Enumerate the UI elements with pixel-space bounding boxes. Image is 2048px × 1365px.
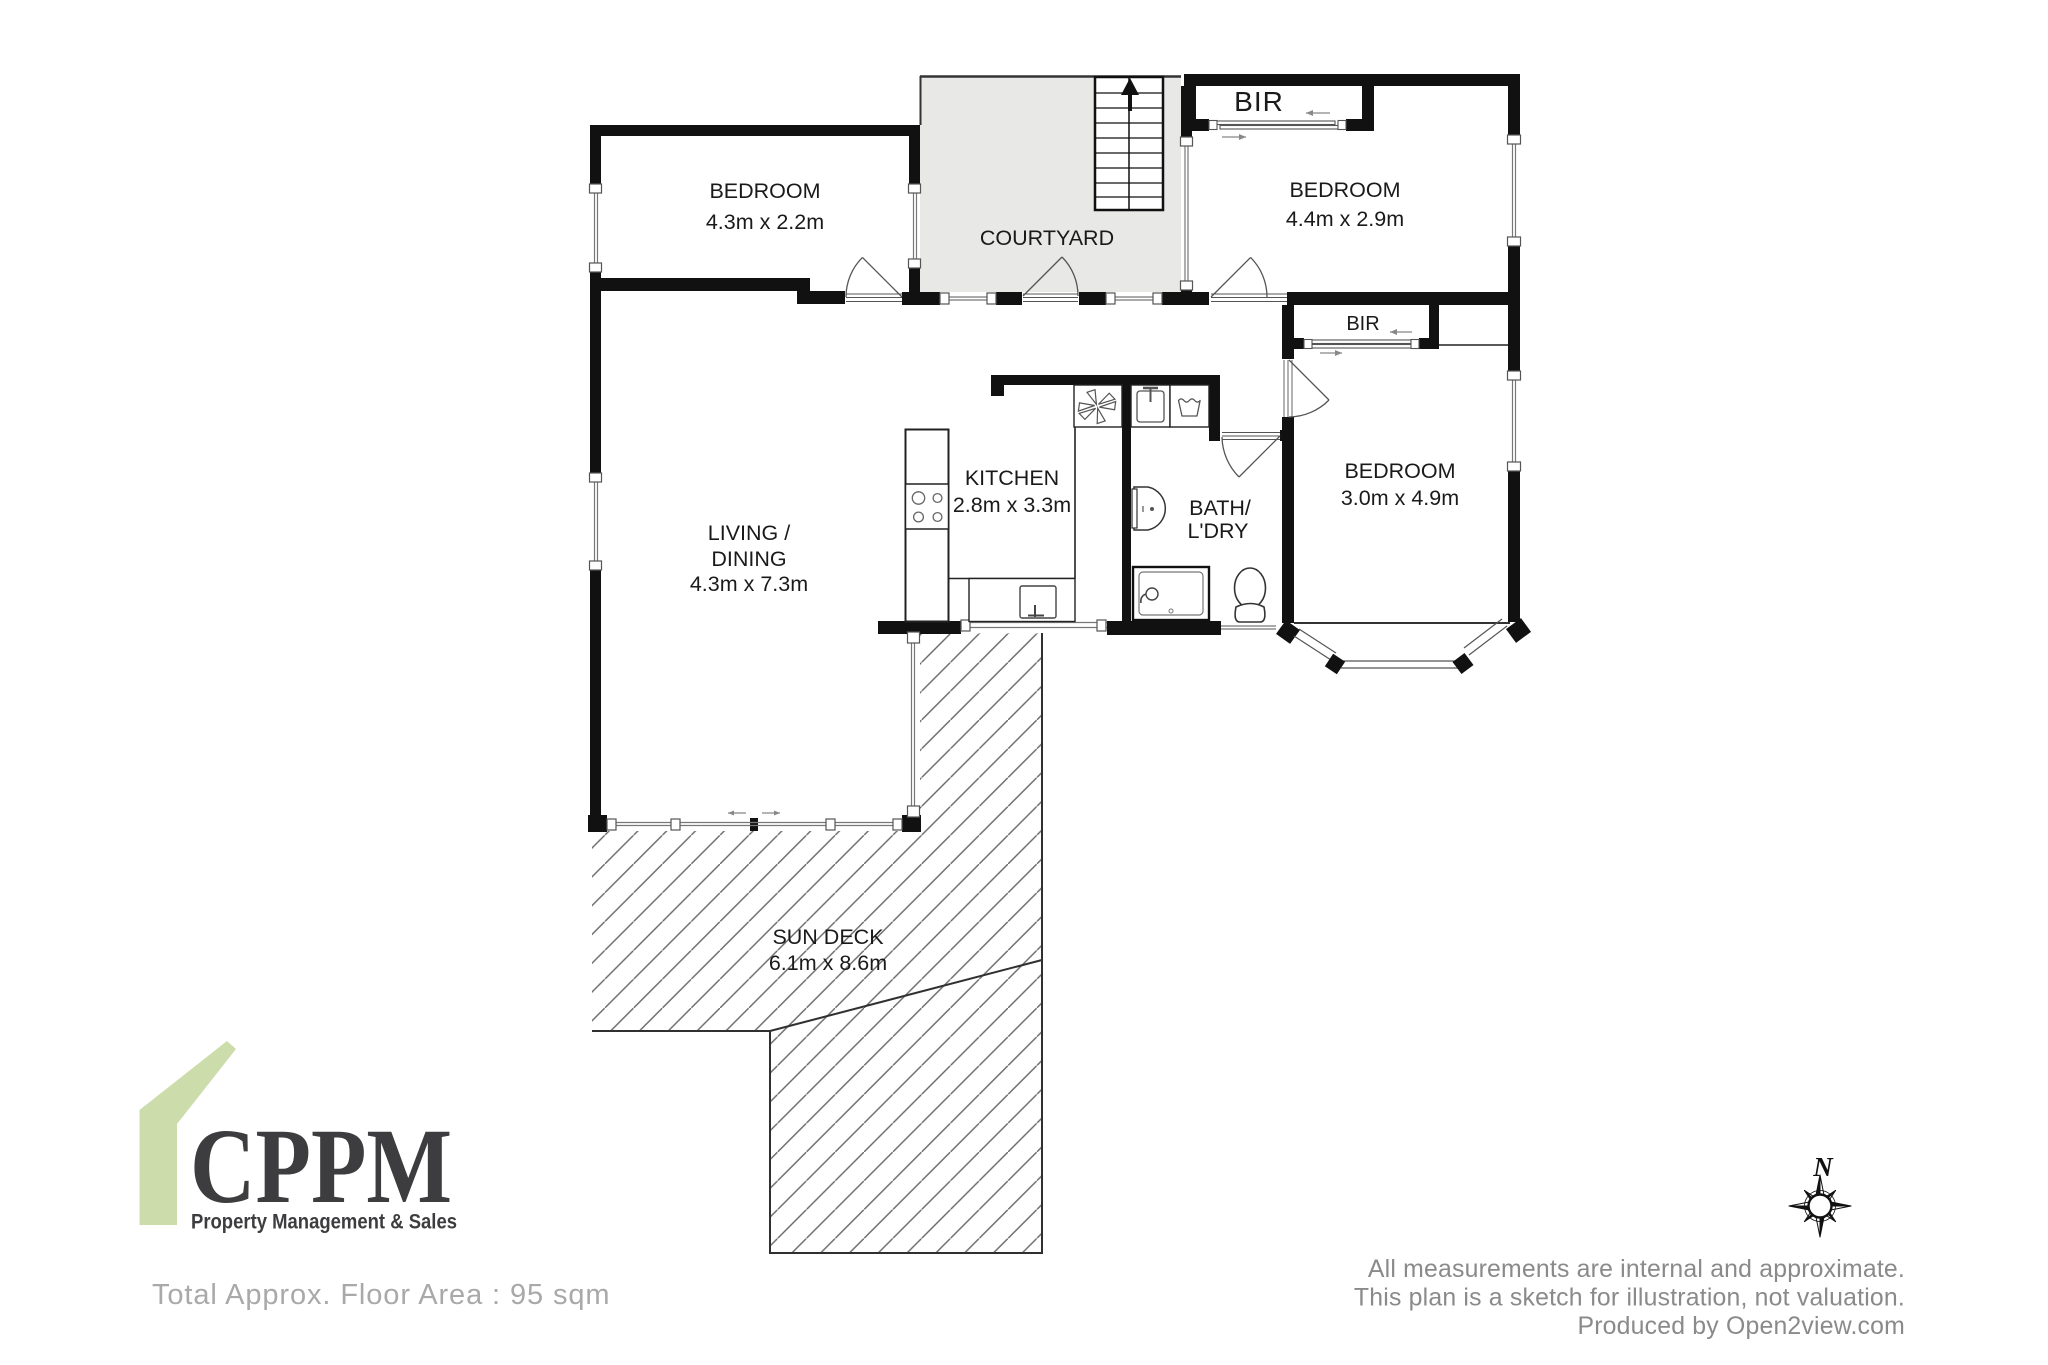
svg-text:6.1m x 8.6m: 6.1m x 8.6m (769, 951, 887, 975)
svg-text:L'DRY: L'DRY (1187, 519, 1248, 543)
svg-text:N: N (1812, 1152, 1834, 1182)
svg-text:Total Approx. Floor Area : 95: Total Approx. Floor Area : 95 sqm (152, 1279, 610, 1311)
svg-text:BIR: BIR (1346, 313, 1379, 335)
svg-text:4.3m x 2.2m: 4.3m x 2.2m (706, 210, 824, 234)
svg-text:BIR: BIR (1234, 86, 1284, 117)
svg-text:BEDROOM: BEDROOM (1344, 459, 1455, 483)
svg-text:4.3m x 7.3m: 4.3m x 7.3m (690, 572, 808, 596)
svg-text:3.0m x 4.9m: 3.0m x 4.9m (1341, 486, 1459, 510)
svg-text:BATH/: BATH/ (1189, 496, 1251, 520)
svg-text:2.8m x 3.3m: 2.8m x 3.3m (953, 493, 1071, 517)
svg-text:DINING: DINING (711, 547, 786, 571)
svg-text:LIVING /: LIVING / (708, 521, 790, 545)
svg-text:SUN DECK: SUN DECK (772, 925, 884, 949)
svg-text:CPPM: CPPM (190, 1108, 452, 1226)
svg-text:COURTYARD: COURTYARD (980, 226, 1114, 250)
svg-text:Produced by Open2view.com: Produced by Open2view.com (1577, 1313, 1905, 1340)
svg-text:BEDROOM: BEDROOM (709, 179, 820, 203)
svg-text:KITCHEN: KITCHEN (965, 466, 1059, 490)
svg-text:All measurements are internal: All measurements are internal and approx… (1368, 1256, 1905, 1283)
svg-text:This plan is a sketch for illu: This plan is a sketch for illustration, … (1354, 1285, 1905, 1312)
svg-text:4.4m x 2.9m: 4.4m x 2.9m (1286, 207, 1404, 231)
svg-text:BEDROOM: BEDROOM (1289, 178, 1400, 202)
svg-text:Property Management & Sales: Property Management & Sales (191, 1210, 457, 1234)
